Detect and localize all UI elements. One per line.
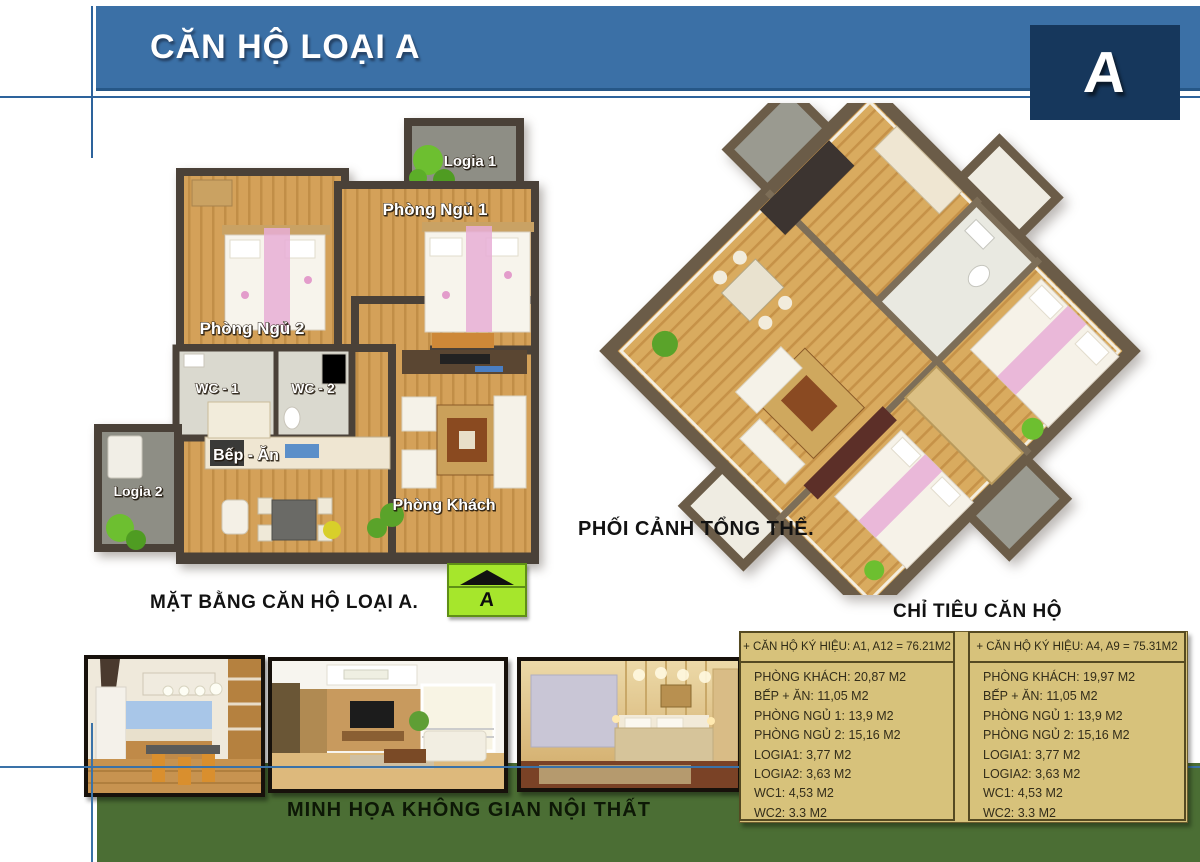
spec-table-rows: PHÒNG KHÁCH: 20,87 M2 BẾP + ĂN: 11,05 M2… <box>741 663 953 823</box>
page-title: CĂN HỘ LOẠI A <box>150 28 421 67</box>
console <box>475 366 503 372</box>
horizontal-rule-top <box>0 96 1200 98</box>
room-label-bedroom2: Phòng Ngủ 2 <box>200 319 305 338</box>
photo-bedroom <box>517 657 742 792</box>
sofa <box>494 396 526 488</box>
kitchen-island <box>208 402 270 438</box>
gallery-caption: MINH HỌA KHÔNG GIAN NỘI THẤT <box>287 799 651 822</box>
room-label-logia2: Logia 2 <box>113 483 162 499</box>
flower-icon <box>323 521 341 539</box>
plant-icon <box>126 530 146 550</box>
spec-row: BẾP + ĂN: 11,05 M2 <box>983 687 1184 706</box>
vertical-rule-bottom <box>91 723 93 862</box>
armchair <box>402 397 436 431</box>
spec-row: WC1: 4,53 M2 <box>754 784 953 803</box>
stool <box>222 500 248 534</box>
spec-row: LOGIA1: 3,77 M2 <box>754 746 953 765</box>
toilet-icon <box>284 407 300 429</box>
spec-table-a4-a9: + CĂN HỘ KÝ HIỆU: A4, A9 = 75.31M2 PHÒNG… <box>968 631 1186 821</box>
photo-living-room <box>268 657 508 793</box>
spec-row: LOGIA1: 3,77 M2 <box>983 746 1184 765</box>
spec-row: PHÒNG NGỦ 2: 15,16 M2 <box>754 726 953 745</box>
sink-icon <box>184 354 204 367</box>
spec-row: WC2: 3.3 M2 <box>983 804 1184 823</box>
room-label-logia1: Logia 1 <box>444 153 497 170</box>
spec-row: LOGIA2: 3,63 M2 <box>983 765 1184 784</box>
spec-row: LOGIA2: 3,63 M2 <box>754 765 953 784</box>
type-letter-badge: A <box>1030 25 1180 120</box>
brochure-page: CĂN HỘ LOẠI A A <box>0 0 1200 862</box>
plan-caption: MẶT BẰNG CĂN HỘ LOẠI A. <box>150 592 418 614</box>
rug <box>432 333 494 348</box>
room-label-living: Phòng Khách <box>392 497 495 514</box>
north-arrow-box: A <box>447 563 527 617</box>
type-letter: A <box>1082 39 1129 106</box>
desk <box>192 180 232 206</box>
spec-row: WC2: 3.3 M2 <box>754 804 953 823</box>
floor-plan-2d: Logia 1 Phòng Ngủ 1 Phòng Ngủ 2 WC - 1 W… <box>80 100 550 570</box>
spec-row: PHÒNG KHÁCH: 20,87 M2 <box>754 668 953 687</box>
perspective-caption: PHỐI CẢNH TỔNG THỂ. <box>578 518 814 541</box>
spec-row: BẾP + ĂN: 11,05 M2 <box>754 687 953 706</box>
plant-icon <box>367 518 387 538</box>
north-arrow-icon <box>449 565 525 588</box>
bed2 <box>222 225 330 332</box>
spec-table-header: + CĂN HỘ KÝ HIỆU: A1, A12 = 76.21M2 <box>741 633 953 663</box>
compass-letter: A <box>448 588 526 613</box>
spec-row: PHÒNG NGỦ 2: 15,16 M2 <box>983 726 1184 745</box>
photo-kitchen-dining <box>84 655 265 797</box>
washer-icon <box>108 436 142 478</box>
spec-row: PHÒNG NGỦ 1: 13,9 M2 <box>754 707 953 726</box>
spec-table-a1-a12: + CĂN HỘ KÝ HIỆU: A1, A12 = 76.21M2 PHÒN… <box>739 631 955 821</box>
specs-heading: CHỈ TIÊU CĂN HỘ <box>893 601 1062 623</box>
spec-row: PHÒNG KHÁCH: 19,97 M2 <box>983 668 1184 687</box>
spec-row: PHÒNG NGỦ 1: 13,9 M2 <box>983 707 1184 726</box>
sink-icon <box>285 444 319 458</box>
armchair <box>402 450 436 488</box>
room-label-kitchen: Bếp - Ăn <box>213 445 279 464</box>
room-label-wc2: WC - 2 <box>291 380 335 396</box>
tv-icon <box>440 354 490 364</box>
room-label-bedroom1: Phòng Ngủ 1 <box>383 200 488 219</box>
spec-table-header: + CĂN HỘ KÝ HIỆU: A4, A9 = 75.31M2 <box>970 633 1184 663</box>
spec-table-rows: PHÒNG KHÁCH: 19,97 M2 BẾP + ĂN: 11,05 M2… <box>970 663 1184 823</box>
bed1 <box>422 222 534 332</box>
room-label-wc1: WC - 1 <box>195 380 239 396</box>
spec-row: WC1: 4,53 M2 <box>983 784 1184 803</box>
coffee-table-rug <box>437 405 497 475</box>
